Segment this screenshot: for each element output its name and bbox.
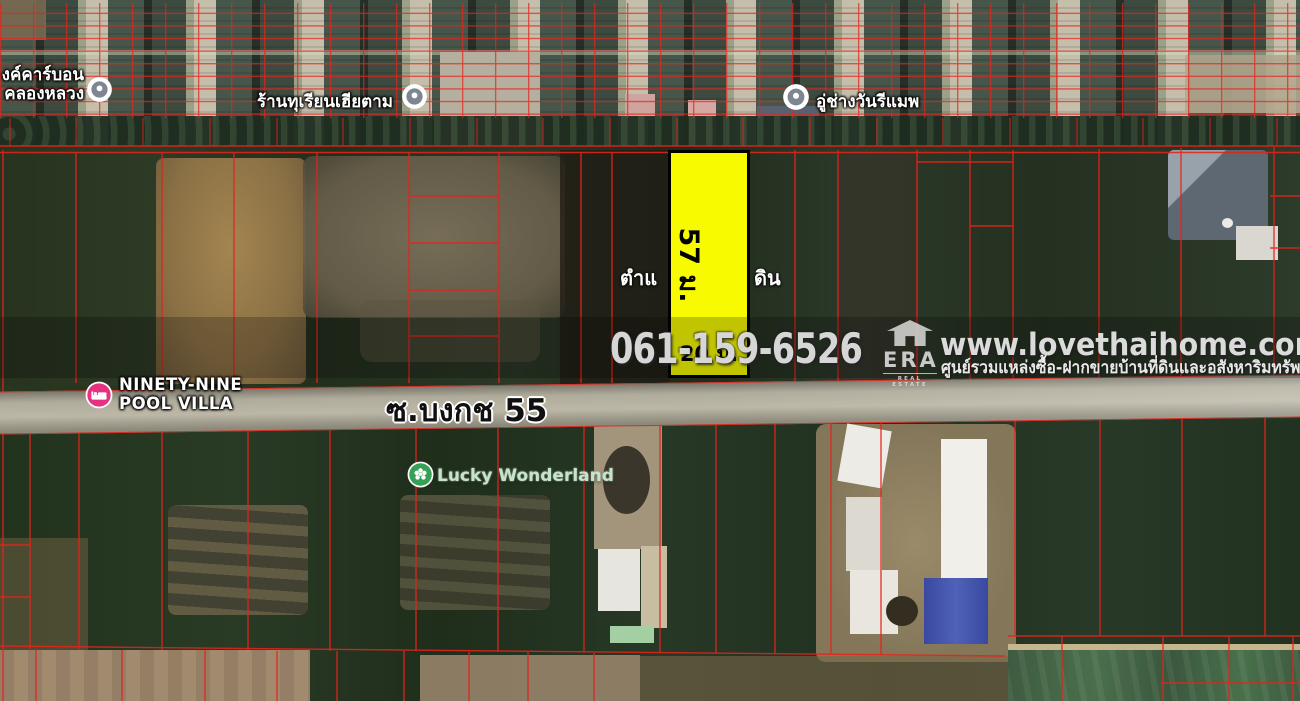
park-flower-pin-icon[interactable] <box>407 461 434 488</box>
poi-label-pool-villa[interactable]: NINETY-NINE POOL VILLA <box>119 376 242 413</box>
satellite-parcel-map: 57 ม. 20 ม. ตำแ ดิน งค์คาร์บอน คลองหลวง … <box>0 0 1300 701</box>
map-pin-icon[interactable] <box>401 83 428 110</box>
poi-label-garage[interactable]: อู่ช่างวันรีแมพ <box>816 88 919 115</box>
lodging-pin-icon[interactable] <box>85 381 113 409</box>
poi-carbon-line1: งค์คาร์บอน <box>0 66 84 85</box>
poi-label-lucky-wonderland[interactable]: Lucky Wonderland <box>437 466 614 486</box>
watermark-tagline: ศูนย์รวมแหล่งซื้อ-ฝากขายบ้านที่ดินและอสั… <box>941 354 1300 381</box>
watermark-phone-number: 061-159-6526 <box>610 324 862 373</box>
era-logo: ERA REAL ESTATE <box>883 320 937 388</box>
era-house-icon <box>887 320 933 346</box>
plot-depth-label: 57 ม. <box>681 210 711 320</box>
poi-carbon-line2: คลองหลวง <box>0 85 84 104</box>
road-name-label[interactable]: ซ.บงกช 55 <box>386 385 547 435</box>
era-brand-text: ERA <box>883 348 937 374</box>
poi-label-carbon[interactable]: งค์คาร์บอน คลองหลวง <box>0 66 84 104</box>
poi-label-durian-shop[interactable]: ร้านทุเรียนเฮียตาม <box>257 88 393 115</box>
era-brand-caption: REAL ESTATE <box>883 376 937 388</box>
map-pin-icon[interactable] <box>86 76 113 103</box>
covered-text-fragment-right: ดิน <box>754 262 781 294</box>
map-pin-icon[interactable] <box>782 83 810 111</box>
poi-villa-line2: POOL VILLA <box>119 395 242 414</box>
covered-text-fragment-left: ตำแ <box>620 262 657 294</box>
poi-villa-line1: NINETY-NINE <box>119 376 242 395</box>
